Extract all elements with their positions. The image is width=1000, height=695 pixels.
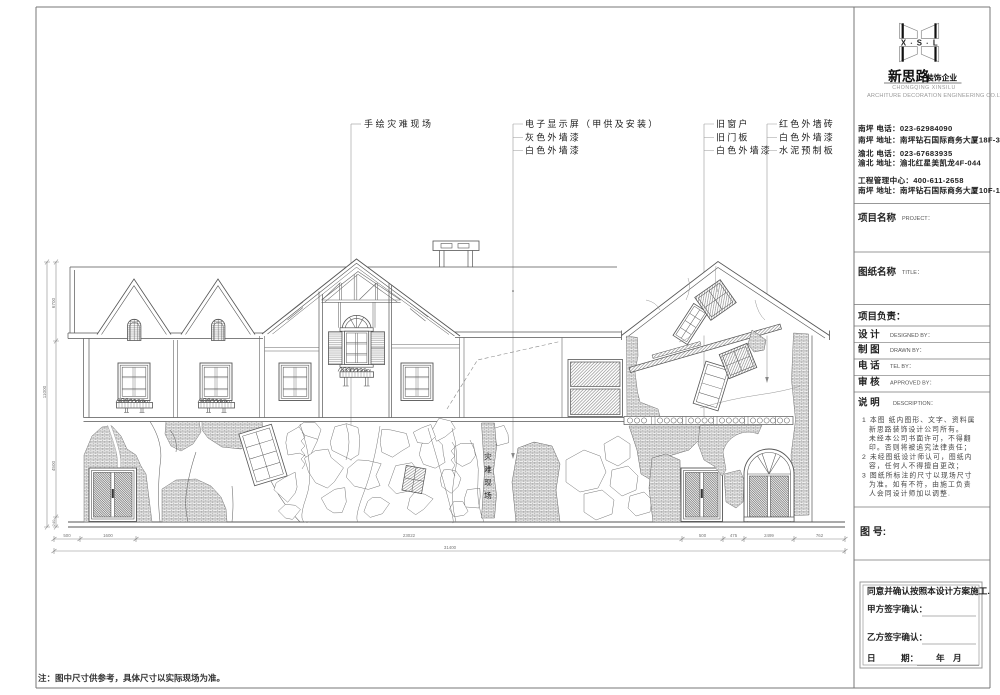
svg-text:6700: 6700	[51, 297, 56, 308]
svg-text:旧门板: 旧门板	[716, 132, 750, 143]
svg-text:注：图中尺寸供参考，具体尺寸以实际现场为准。: 注：图中尺寸供参考，具体尺寸以实际现场为准。	[38, 673, 225, 683]
svg-text:CHONGQING XINSILU: CHONGQING XINSILU	[892, 85, 956, 91]
svg-text:图 号:: 图 号:	[860, 526, 886, 538]
svg-text:甲方签字确认：: 甲方签字确认：	[867, 603, 927, 614]
svg-text:年: 年	[936, 652, 945, 663]
svg-text:1600: 1600	[103, 533, 113, 538]
svg-text:未经本公司书面许可，不得翻: 未经本公司书面许可，不得翻	[869, 434, 972, 443]
svg-text:DESCRIPTION：: DESCRIPTION：	[893, 401, 936, 407]
svg-text:2499: 2499	[764, 533, 774, 538]
svg-text:装饰企业: 装饰企业	[925, 73, 957, 83]
svg-text:渝北 电话：023-67683935: 渝北 电话：023-67683935	[857, 148, 953, 158]
svg-text:PROJECT：: PROJECT：	[902, 216, 933, 222]
svg-text:4500: 4500	[51, 460, 56, 471]
svg-text:期：: 期：	[901, 652, 918, 663]
svg-text:X: X	[901, 39, 907, 48]
svg-text:月: 月	[952, 653, 962, 663]
svg-text:场: 场	[484, 491, 492, 500]
svg-text:DRAWN BY：: DRAWN BY：	[890, 348, 925, 354]
svg-text:DESIGNED BY：: DESIGNED BY：	[890, 333, 933, 339]
svg-text:灾: 灾	[484, 451, 492, 461]
svg-text:现: 现	[484, 478, 492, 487]
svg-text:红色外墙砖: 红色外墙砖	[779, 118, 835, 129]
svg-text:新思路: 新思路	[888, 68, 930, 84]
svg-text:电 话: 电 话	[858, 360, 880, 372]
svg-text:图纸名称: 图纸名称	[858, 266, 897, 278]
svg-text:水泥预制板: 水泥预制板	[779, 145, 835, 156]
svg-text:日: 日	[867, 653, 876, 663]
svg-text:白色外墙漆: 白色外墙漆	[716, 145, 772, 156]
svg-text:南坪 电话：023-62984090: 南坪 电话：023-62984090	[858, 123, 952, 133]
svg-text:审 核: 审 核	[858, 376, 880, 388]
svg-text:制 图: 制 图	[858, 344, 880, 356]
svg-text:工程管理中心：400-611-2658: 工程管理中心：400-611-2658	[858, 175, 964, 185]
svg-text:L: L	[933, 39, 938, 48]
svg-text:为准。如有不符，由施工负责: 为准。如有不符，由施工负责	[869, 480, 972, 489]
svg-text:乙方签字确认：: 乙方签字确认：	[867, 631, 927, 642]
svg-text:APPROVED BY：: APPROVED BY：	[890, 381, 935, 387]
svg-text:同意并确认按照本设计方案施工.: 同意并确认按照本设计方案施工.	[867, 585, 990, 596]
svg-text:印。否则将被追究法律责任；: 印。否则将被追究法律责任；	[869, 443, 972, 452]
svg-text:ARCHITURE DECORATION ENGINEE: ARCHITURE DECORATION ENGINEERING CO.LTD	[867, 93, 1000, 99]
svg-text:TITLE：: TITLE：	[902, 270, 922, 276]
svg-text:难: 难	[484, 464, 492, 474]
svg-text:2 未经图纸设计师认可，图纸内: 2 未经图纸设计师认可，图纸内	[862, 452, 973, 461]
svg-text:31400: 31400	[444, 545, 457, 550]
svg-text:23022: 23022	[403, 533, 416, 538]
svg-text:人会同设计师加以调整.: 人会同设计师加以调整.	[869, 489, 951, 498]
svg-text:TEL BY：: TEL BY：	[890, 364, 914, 370]
svg-text:南坪 地址：南坪钻石国际商务大厦18F-3: 南坪 地址：南坪钻石国际商务大厦18F-3	[858, 135, 1000, 145]
svg-text:手绘灾难现场: 手绘灾难现场	[364, 118, 434, 129]
svg-text:白色外墙漆: 白色外墙漆	[525, 145, 581, 156]
svg-text:白色外墙漆: 白色外墙漆	[779, 132, 835, 143]
svg-text:项目名称: 项目名称	[858, 212, 897, 224]
svg-text:灰色外墙漆: 灰色外墙漆	[525, 132, 581, 143]
svg-text:500: 500	[63, 533, 71, 538]
svg-text:240: 240	[51, 519, 56, 526]
svg-text:475: 475	[730, 533, 738, 538]
svg-text:项目负责：: 项目负责：	[858, 311, 906, 323]
svg-text:762: 762	[816, 533, 824, 538]
svg-text:渝北 地址：渝北红星美凯龙4F-044: 渝北 地址：渝北红星美凯龙4F-044	[857, 158, 981, 168]
svg-text:容，任何人不得擅自更改；: 容，任何人不得擅自更改；	[869, 461, 964, 470]
svg-text:1 本图 纸内图形、文字、资料属: 1 本图 纸内图形、文字、资料属	[862, 415, 976, 424]
svg-text:电子显示屏（甲供及安装）: 电子显示屏（甲供及安装）	[525, 118, 659, 129]
svg-text:11000: 11000	[42, 385, 47, 398]
svg-text:旧窗户: 旧窗户	[716, 118, 750, 129]
svg-text:S: S	[917, 39, 922, 48]
svg-text:设 计: 设 计	[858, 329, 880, 341]
svg-text:3 图纸所标注的尺寸以现场尺寸: 3 图纸所标注的尺寸以现场尺寸	[862, 470, 973, 479]
svg-text:新思路装饰设计公司所有。: 新思路装饰设计公司所有。	[869, 424, 964, 433]
svg-text:说 明: 说 明	[858, 397, 880, 409]
svg-text:南坪 地址：南坪钻石国际商务大厦10F-1: 南坪 地址：南坪钻石国际商务大厦10F-1	[858, 185, 1000, 195]
svg-text:500: 500	[699, 533, 707, 538]
